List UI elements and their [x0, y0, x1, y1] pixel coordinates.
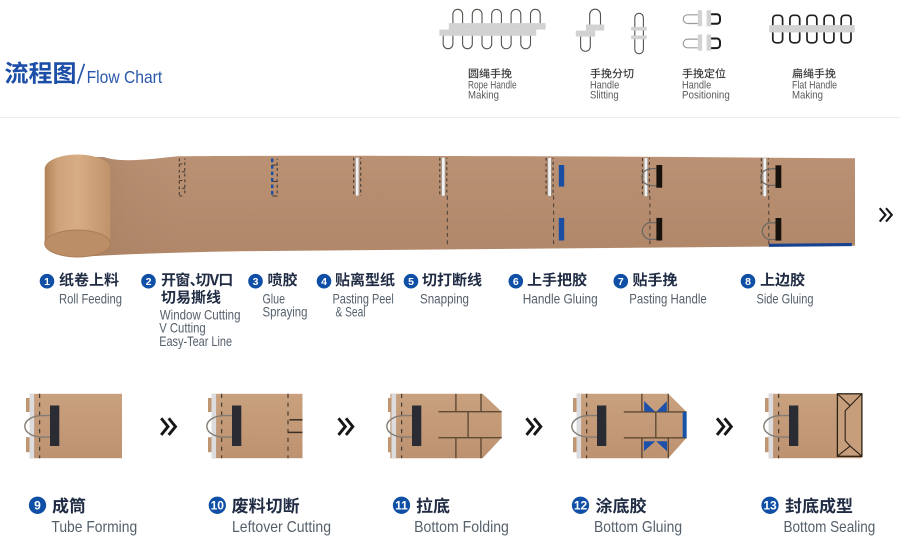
svg-text:Roll Feeding: Roll Feeding [59, 290, 122, 306]
svg-text:& Seal: & Seal [336, 304, 366, 320]
svg-text:Pasting Handle: Pasting Handle [629, 290, 707, 306]
svg-text:7: 7 [618, 276, 624, 288]
svg-text:13: 13 [763, 499, 777, 513]
svg-text:10: 10 [211, 499, 225, 513]
svg-text:Flow Chart: Flow Chart [87, 67, 163, 87]
svg-text:8: 8 [745, 276, 751, 288]
svg-text:Making: Making [792, 90, 823, 102]
svg-text:Leftover Cutting: Leftover Cutting [232, 519, 331, 536]
svg-text:12: 12 [574, 499, 588, 513]
svg-text:Spraying: Spraying [263, 304, 308, 320]
svg-text:Tube Forming: Tube Forming [51, 519, 137, 536]
svg-text:Side Gluing: Side Gluing [757, 290, 814, 306]
svg-text:4: 4 [321, 276, 327, 288]
svg-text:Bottom Sealing: Bottom Sealing [784, 519, 876, 536]
svg-text:Bottom Gluing: Bottom Gluing [594, 519, 682, 536]
svg-text:Handle Gluing: Handle Gluing [523, 290, 598, 306]
svg-text:9: 9 [34, 499, 41, 513]
svg-text:Making: Making [468, 90, 499, 102]
svg-text:6: 6 [513, 276, 519, 288]
svg-text:1: 1 [44, 276, 50, 288]
svg-text:3: 3 [253, 276, 259, 288]
svg-text:Slitting: Slitting [590, 90, 619, 102]
svg-text:Positioning: Positioning [682, 90, 730, 102]
svg-text:Snapping: Snapping [420, 290, 469, 306]
svg-text:Bottom Folding: Bottom Folding [414, 519, 509, 536]
svg-text:Easy-Tear Line: Easy-Tear Line [159, 333, 232, 349]
svg-text:5: 5 [408, 276, 414, 288]
svg-text:11: 11 [395, 499, 408, 513]
svg-text:2: 2 [146, 276, 152, 288]
